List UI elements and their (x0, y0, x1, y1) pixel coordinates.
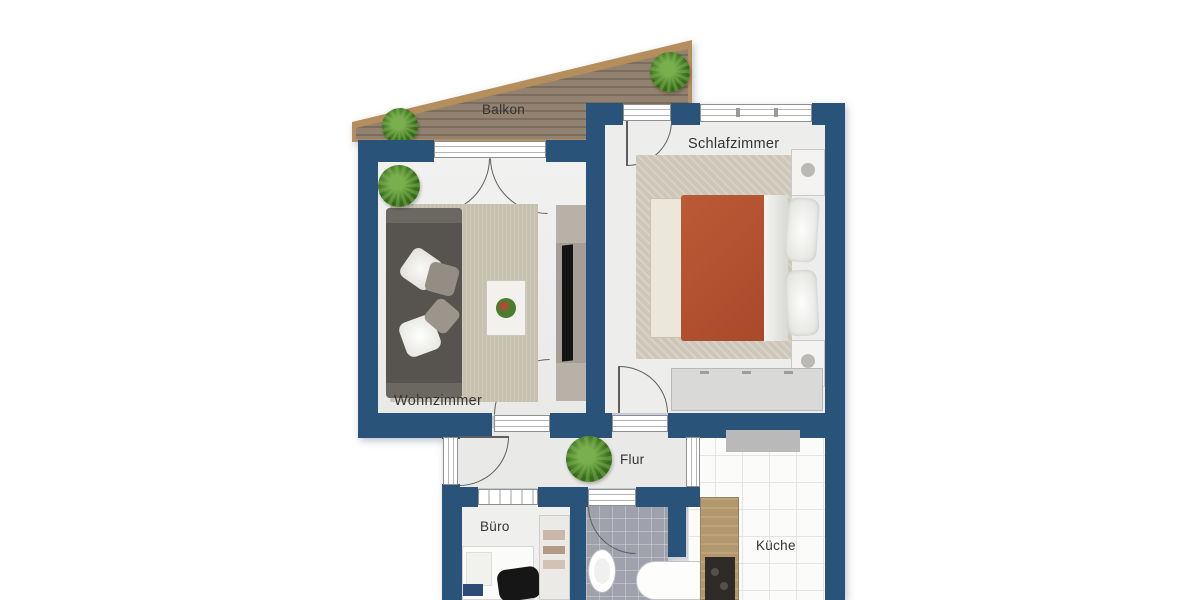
wall-segment (442, 505, 462, 600)
sofa (386, 208, 462, 398)
shelf-item (543, 546, 565, 554)
bed-pillow (784, 197, 820, 263)
wall-segment (442, 487, 478, 507)
plant-icon (566, 436, 612, 482)
wardrobe-handle (700, 371, 709, 374)
window-mullion (736, 108, 740, 117)
wardrobe-handle (742, 371, 751, 374)
office-chair (496, 565, 542, 600)
buero-radiator (478, 489, 538, 505)
wall-segment (550, 413, 612, 438)
wall-segment (538, 487, 588, 507)
plant-icon (378, 165, 420, 207)
window-mullion (774, 108, 778, 117)
wall-segment (668, 507, 686, 557)
room-label-schlafzimmer: Schlafzimmer (688, 136, 779, 152)
wall-segment (586, 103, 605, 438)
stove-burner (711, 568, 719, 576)
bad-door (588, 489, 636, 506)
wall-segment (442, 413, 460, 439)
sofa-armrest (386, 208, 462, 223)
plant-icon (382, 108, 418, 144)
shelf (539, 515, 570, 600)
bed-duvet (681, 195, 767, 341)
kueche-door (686, 437, 700, 487)
nightstand-lamp (801, 354, 815, 368)
desk-papers (466, 552, 492, 586)
wall-segment (825, 103, 845, 600)
plant-icon (650, 52, 690, 92)
wall-segment (570, 507, 586, 600)
entrance-door (443, 437, 458, 485)
tv-sideboard (556, 363, 586, 401)
wall-segment (358, 140, 434, 162)
wall-segment (358, 413, 492, 438)
tv-sideboard (556, 205, 586, 243)
wall-segment (636, 487, 700, 507)
wall-segment (358, 140, 378, 438)
schlafzimmer-door (612, 415, 668, 432)
room-label-flur: Flur (620, 452, 644, 467)
bed-bench (650, 198, 682, 338)
door-leaf (459, 436, 509, 438)
room-label-wohnzimmer: Wohnzimmer (394, 393, 482, 409)
room-label-balkon: Balkon (482, 102, 525, 117)
tv-icon (562, 244, 573, 361)
wall-segment (605, 103, 623, 125)
desk-item (463, 584, 483, 596)
bed-pillow (784, 269, 819, 337)
kitchen-appliance (726, 430, 800, 452)
door-leaf (626, 121, 628, 166)
shelf-item (543, 530, 565, 540)
wall-segment (671, 103, 700, 125)
wardrobe-handle (784, 371, 793, 374)
stove-burner (720, 582, 728, 590)
shelf-item (543, 560, 565, 569)
bed-sheet (764, 195, 788, 341)
sink-basin (594, 558, 610, 584)
room-label-kueche: Küche (756, 538, 796, 553)
schlafzimmer-balcony-door (623, 104, 671, 121)
door-leaf (618, 366, 620, 413)
table-plant-icon (496, 298, 516, 318)
stove (705, 557, 735, 600)
apartment-plan: Balkon Schlafzimmer Wohnzimmer Flur Büro… (0, 0, 1200, 600)
floorplan-image: Immobilien seit 1983 (0, 0, 1200, 600)
schlafzimmer-window (700, 104, 812, 122)
bathtub (636, 561, 702, 600)
wardrobe (671, 368, 823, 411)
wohnzimmer-door (494, 415, 550, 432)
room-label-buero: Büro (480, 519, 510, 534)
balcony-french-door (434, 141, 546, 158)
nightstand-lamp (801, 163, 815, 177)
